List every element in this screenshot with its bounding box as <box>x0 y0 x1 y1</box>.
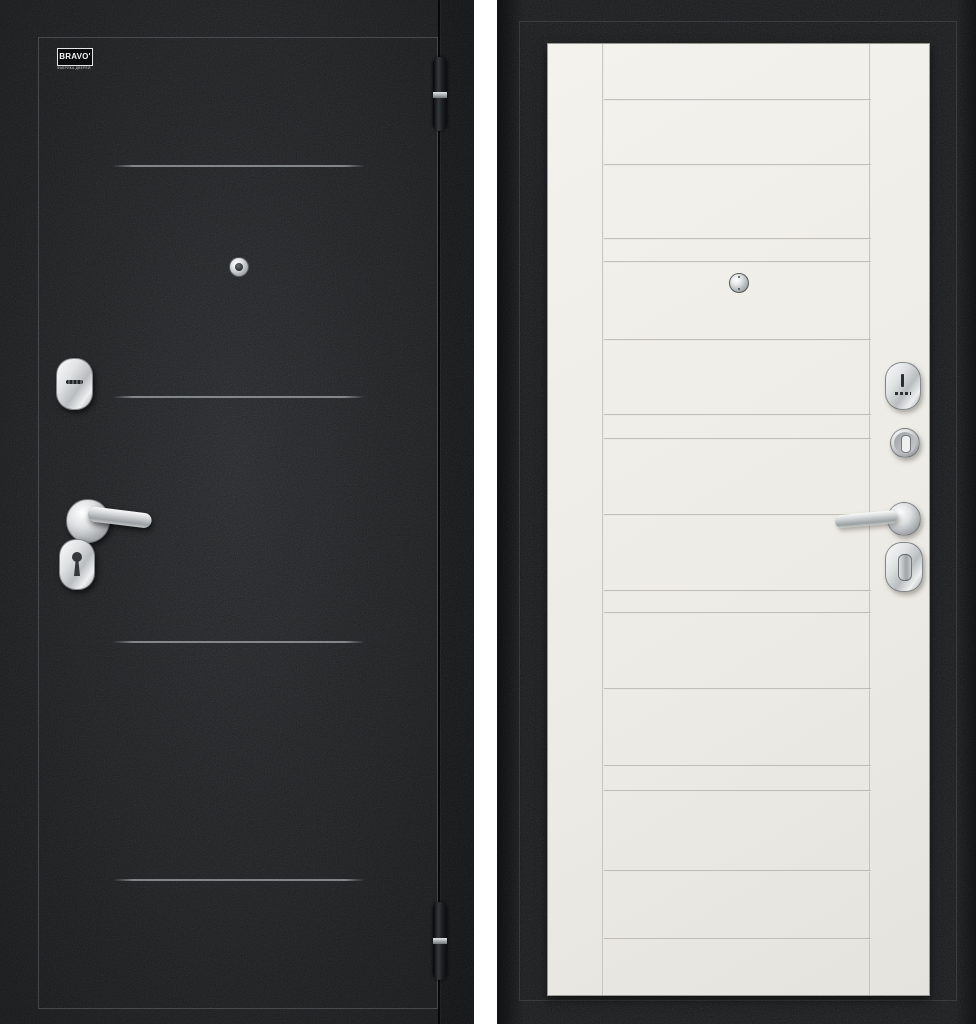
photo-gap <box>474 0 497 1024</box>
panel-groove <box>604 514 871 516</box>
door-interior-view <box>497 0 976 1024</box>
decorative-groove <box>113 879 365 881</box>
thumbturn <box>885 542 923 592</box>
brand-logo-text: BRAVO' <box>59 53 90 61</box>
panel-groove <box>604 590 871 592</box>
hinge-band <box>433 92 447 98</box>
decorative-groove <box>113 641 365 643</box>
cylinder-escutcheon <box>56 358 93 410</box>
key-slot <box>901 374 904 387</box>
panel-groove <box>604 612 871 614</box>
product-photo: BRAVO' ФАБРИКА ДВЕРЕЙ <box>0 0 976 1024</box>
panel-groove <box>604 765 871 767</box>
knob-turn-pill <box>901 435 911 453</box>
keyhole-escutcheon <box>59 539 95 590</box>
frame-shading-right <box>956 0 976 1024</box>
brand-logo-box: BRAVO' <box>57 48 93 66</box>
panel-groove-vertical <box>602 44 604 995</box>
key-escutcheon <box>885 362 921 410</box>
hinge-bottom <box>433 902 447 980</box>
peephole-lens <box>235 263 243 271</box>
panel-groove <box>604 238 871 240</box>
keyhole-slot <box>74 560 80 576</box>
brand-logo: BRAVO' ФАБРИКА ДВЕРЕЙ <box>57 48 127 73</box>
hinge-top <box>433 57 447 131</box>
panel-groove <box>604 790 871 792</box>
peephole <box>729 273 749 293</box>
peephole-screw <box>738 276 740 278</box>
panel-groove <box>604 414 871 416</box>
panel-groove <box>604 938 871 940</box>
panel-groove <box>604 164 871 166</box>
thumbturn-pill <box>898 554 912 581</box>
panel-groove <box>604 870 871 872</box>
key-slot <box>66 380 83 384</box>
night-latch-knob <box>890 428 920 458</box>
brand-logo-subtitle: ФАБРИКА ДВЕРЕЙ <box>57 67 96 70</box>
door-leaf-gap-line <box>438 0 440 1024</box>
hinge-band <box>433 938 447 944</box>
panel-groove <box>604 99 871 101</box>
door-leaf-panel <box>547 43 930 996</box>
panel-groove <box>604 261 871 263</box>
decorative-groove <box>113 165 365 167</box>
peephole-screw <box>738 288 740 290</box>
panel-groove <box>604 339 871 341</box>
panel-groove <box>604 438 871 440</box>
peephole <box>229 257 249 277</box>
key-slot-dashes <box>895 392 911 395</box>
panel-groove <box>604 688 871 690</box>
door-exterior-view: BRAVO' ФАБРИКА ДВЕРЕЙ <box>0 0 474 1024</box>
decorative-groove <box>113 396 365 398</box>
